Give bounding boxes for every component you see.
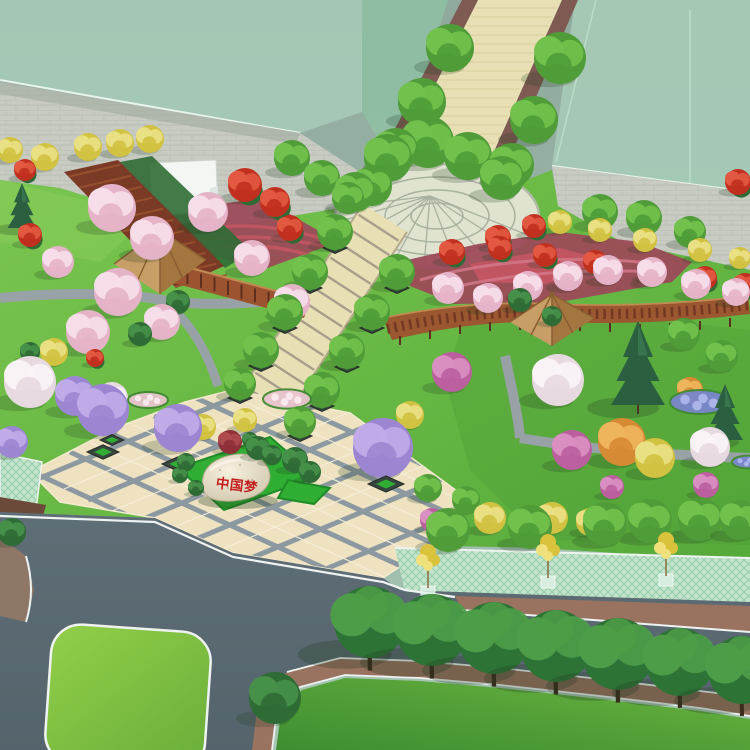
tree [263,389,311,408]
park-aerial-render: 中国梦 [0,0,750,750]
tree [128,392,168,408]
render-canvas: 中国梦 [0,0,750,750]
ghost-building-right [552,0,750,192]
traffic-island [43,623,212,750]
tree [732,456,750,469]
grass-paver-strip-left [0,453,46,520]
